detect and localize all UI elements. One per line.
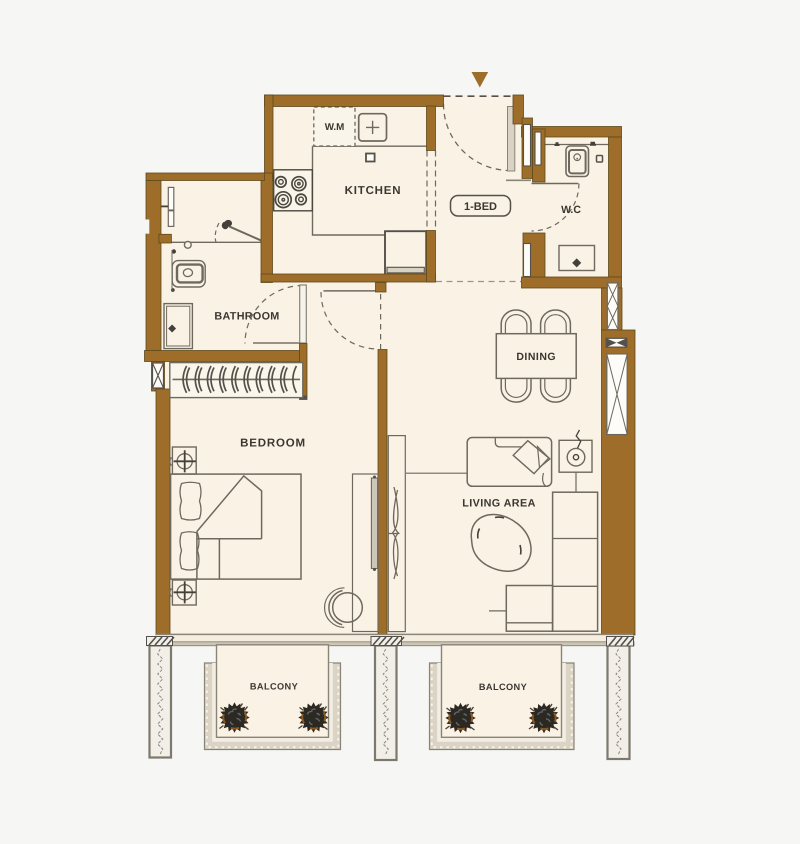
svg-text:LIVING AREA: LIVING AREA [462,498,536,510]
svg-text:1-BED: 1-BED [464,201,497,213]
svg-text:W.M: W.M [325,122,345,133]
svg-text:BALCONY: BALCONY [479,682,527,692]
svg-text:KITCHEN: KITCHEN [345,185,402,197]
svg-text:BEDROOM: BEDROOM [240,437,306,449]
svg-text:BALCONY: BALCONY [250,681,298,691]
svg-text:DINING: DINING [516,351,556,363]
svg-text:W.C: W.C [561,204,581,216]
svg-text:BATHROOM: BATHROOM [214,310,279,322]
